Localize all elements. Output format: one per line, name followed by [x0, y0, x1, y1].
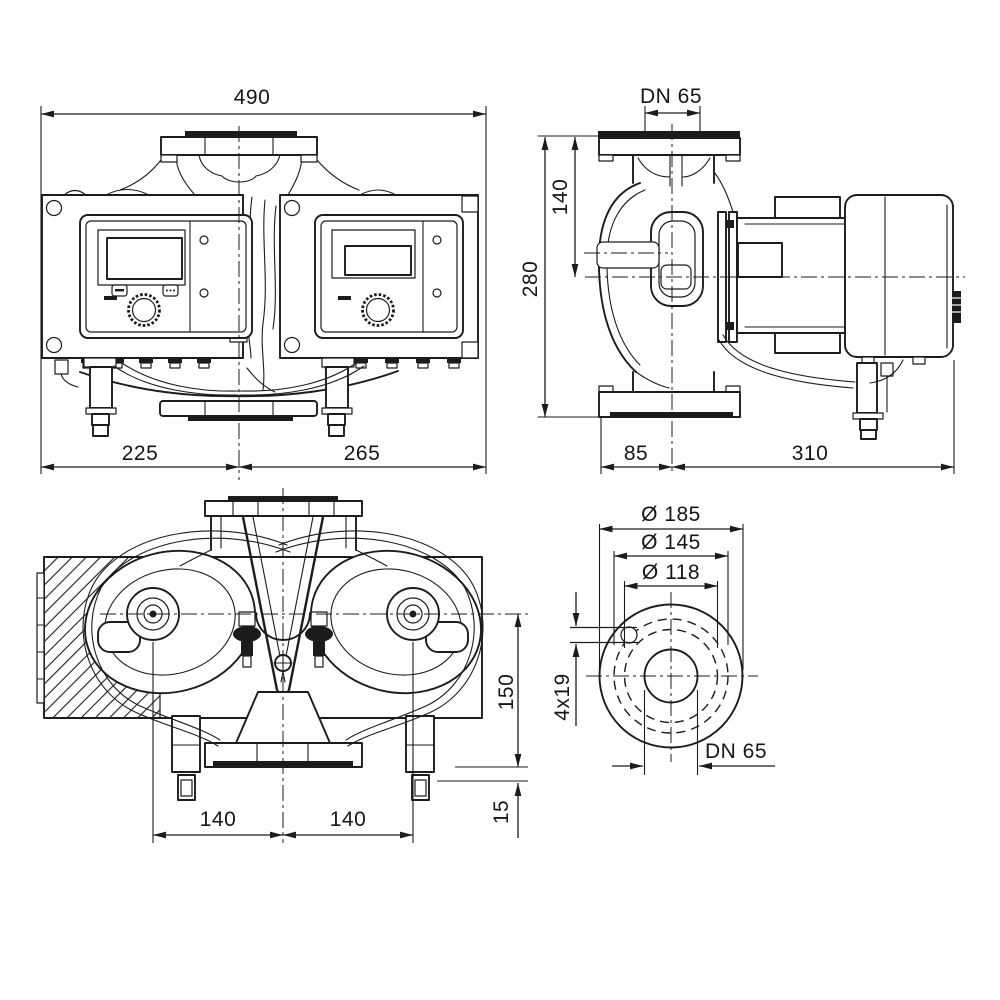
side-pump-housing [584, 155, 733, 392]
dim-flange-to-foot: 15 [437, 781, 528, 838]
terminal-box [738, 243, 782, 277]
top-140-left-dim-label: 140 [200, 808, 237, 831]
side-motor [718, 195, 961, 364]
side-bottom-flange [538, 386, 740, 418]
flange-118-dim-label: Ø 118 [642, 561, 700, 584]
dim-flange-nominal: DN 65 [640, 85, 702, 133]
front-left-dim-label: 225 [122, 442, 159, 465]
bolt-hole [621, 627, 637, 643]
top-15-dim-label: 15 [490, 800, 513, 824]
side-electronics-module [845, 195, 953, 357]
side-310-dim-label: 310 [792, 442, 829, 465]
technical-drawing-canvas: 490 225 265 [0, 0, 1000, 1000]
flange-145-dim-label: Ø 145 [641, 531, 701, 554]
left-control-module [80, 215, 252, 338]
side-top-flange [538, 131, 740, 161]
flange-dn-dim-label: DN 65 [705, 740, 767, 763]
dim-axis-to-flange-edge: 85 [601, 417, 672, 474]
pump-dimensional-drawing: 490 225 265 [0, 0, 1000, 1000]
side-85-dim-label: 85 [624, 442, 648, 465]
top-140-right-dim-label: 140 [330, 808, 367, 831]
side-port [597, 242, 659, 268]
side-support-leg [853, 363, 893, 439]
flange-185-dim-label: Ø 185 [641, 503, 701, 526]
plug-connector [952, 291, 961, 323]
top-view: 140 140 150 15 [37, 488, 528, 843]
front-width-dim-label: 490 [234, 86, 271, 109]
side-280-dim-label: 280 [519, 261, 542, 298]
dim-center-to-right: 265 [239, 442, 486, 467]
dim-overall-height: 280 [519, 137, 545, 417]
sensor-connector [55, 360, 68, 374]
right-status-led [338, 296, 351, 300]
dim-center-to-left: 225 [41, 442, 239, 467]
left-status-led [104, 296, 117, 300]
front-right-dim-label: 265 [344, 442, 381, 465]
right-control-module [315, 215, 463, 338]
cable-glands [81, 358, 461, 368]
side-view: DN 65 140 280 85 310 [519, 85, 965, 474]
side-dn-dim-label: DN 65 [640, 85, 702, 108]
side-140-dim-label: 140 [549, 179, 572, 216]
front-view: 490 225 265 [41, 86, 486, 480]
top-150-dim-label: 150 [495, 674, 518, 711]
dim-flange-to-axis: 140 [549, 137, 575, 277]
flange-detail-view: Ø 185 Ø 145 Ø 118 4x19 DN 65 [551, 503, 775, 775]
flange-4x19-dim-label: 4x19 [551, 673, 574, 721]
